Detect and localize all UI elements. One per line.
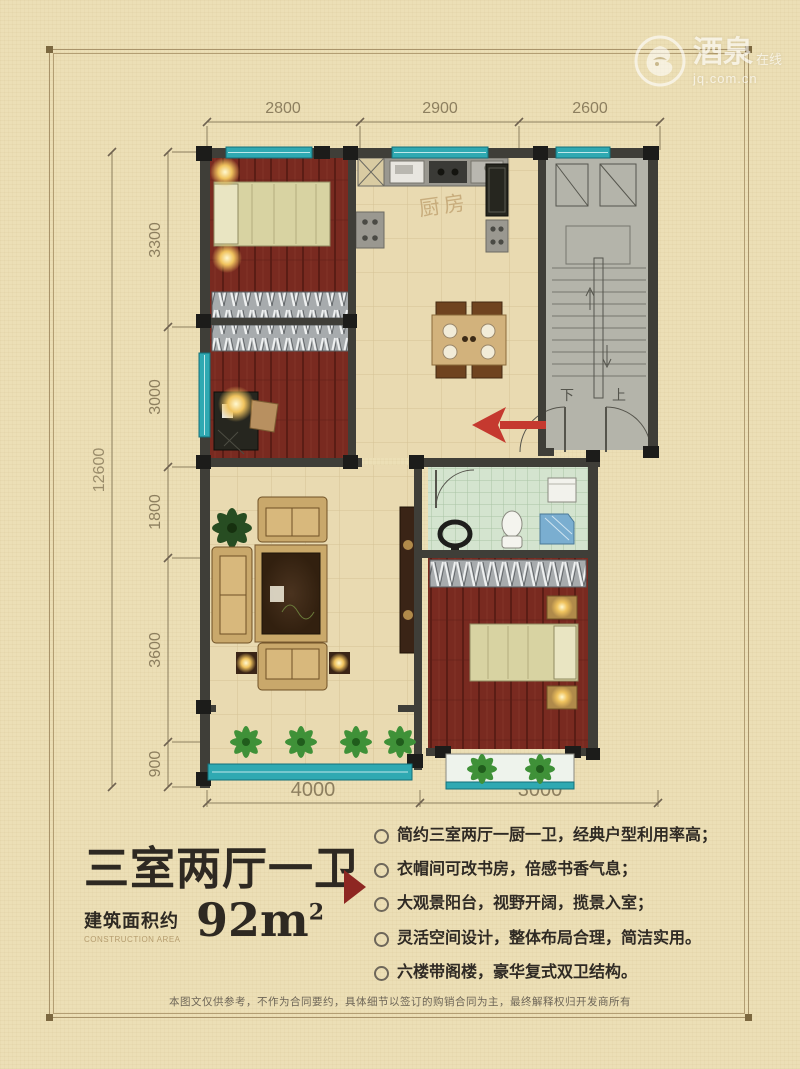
feature-list: 简约三室两厅一厨一卫，经典户型利用率高； 衣帽间可改书房，倍感书香气息； 大观景… bbox=[374, 826, 764, 997]
plant bbox=[212, 508, 252, 548]
feature-item: 大观景阳台，视野开阔，揽景入室； bbox=[374, 894, 764, 913]
desk-chair bbox=[250, 400, 278, 432]
desk-lamp bbox=[218, 386, 254, 422]
ring-bullet-icon bbox=[374, 897, 389, 912]
dim-left-3: 1800 bbox=[147, 494, 164, 530]
area-label-en: CONSTRUCTION AREA bbox=[84, 935, 188, 944]
dim-left-4: 3600 bbox=[147, 632, 164, 668]
ring-bullet-icon bbox=[374, 966, 389, 981]
watermark-suffix: 在线 bbox=[756, 53, 782, 66]
ring-bullet-icon bbox=[374, 829, 389, 844]
triangle-marker-icon bbox=[344, 870, 366, 904]
bedside-lamp bbox=[212, 243, 242, 273]
feature-item: 衣帽间可改书房，倍感书香气息； bbox=[374, 860, 764, 879]
bedside-lamp bbox=[551, 686, 573, 708]
bedside-lamp bbox=[551, 596, 573, 618]
dim-left-2: 3000 bbox=[147, 379, 164, 415]
dim-top-1: 2800 bbox=[265, 100, 301, 117]
disclaimer-text: 本图文仅供参考，不作为合同要约，具体细节以签订的购销合同为主，最终解释权归开发商… bbox=[0, 994, 800, 1009]
washing-machine bbox=[548, 478, 576, 502]
bay-window bbox=[446, 754, 574, 789]
watermark-domain: jq.com.cn bbox=[693, 72, 782, 85]
site-watermark: 酒泉 在线 jq.com.cn bbox=[633, 34, 782, 88]
wardrobe bbox=[212, 292, 350, 318]
dim-top-2: 2900 bbox=[422, 100, 458, 117]
dim-top-3: 2600 bbox=[572, 100, 608, 117]
dim-left-5: 900 bbox=[147, 751, 164, 778]
stair-up-label: 上 bbox=[612, 387, 626, 403]
toilet bbox=[502, 511, 522, 537]
area-label: 建筑面积约 bbox=[84, 907, 188, 933]
table-lamp bbox=[329, 653, 349, 673]
dim-left-1: 3300 bbox=[147, 222, 164, 258]
wardrobe bbox=[212, 325, 350, 351]
plan-title: 三室两厅一卫 bbox=[84, 832, 354, 897]
tv-cabinet bbox=[400, 507, 416, 653]
stair-down-label: 下 bbox=[560, 387, 574, 403]
bedside-lamp bbox=[210, 157, 240, 187]
wardrobe bbox=[430, 560, 586, 587]
area-value: 92m2 bbox=[196, 893, 324, 947]
feature-item: 简约三室两厅一厨一卫，经典户型利用率高； bbox=[374, 826, 764, 845]
feature-item: 六楼带阁楼，豪华复式双卫结构。 bbox=[374, 963, 764, 982]
feature-item: 灵活空间设计，整体布局合理，简洁实用。 bbox=[374, 929, 764, 948]
dim-bottom-1: 4000 bbox=[291, 779, 336, 801]
ring-bullet-icon bbox=[374, 932, 389, 947]
watermark-brand: 酒泉 bbox=[693, 38, 753, 68]
ring-bullet-icon bbox=[374, 863, 389, 878]
table-lamp bbox=[236, 653, 256, 673]
dim-left-total: 12600 bbox=[91, 448, 108, 493]
dove-logo-icon bbox=[633, 34, 687, 88]
